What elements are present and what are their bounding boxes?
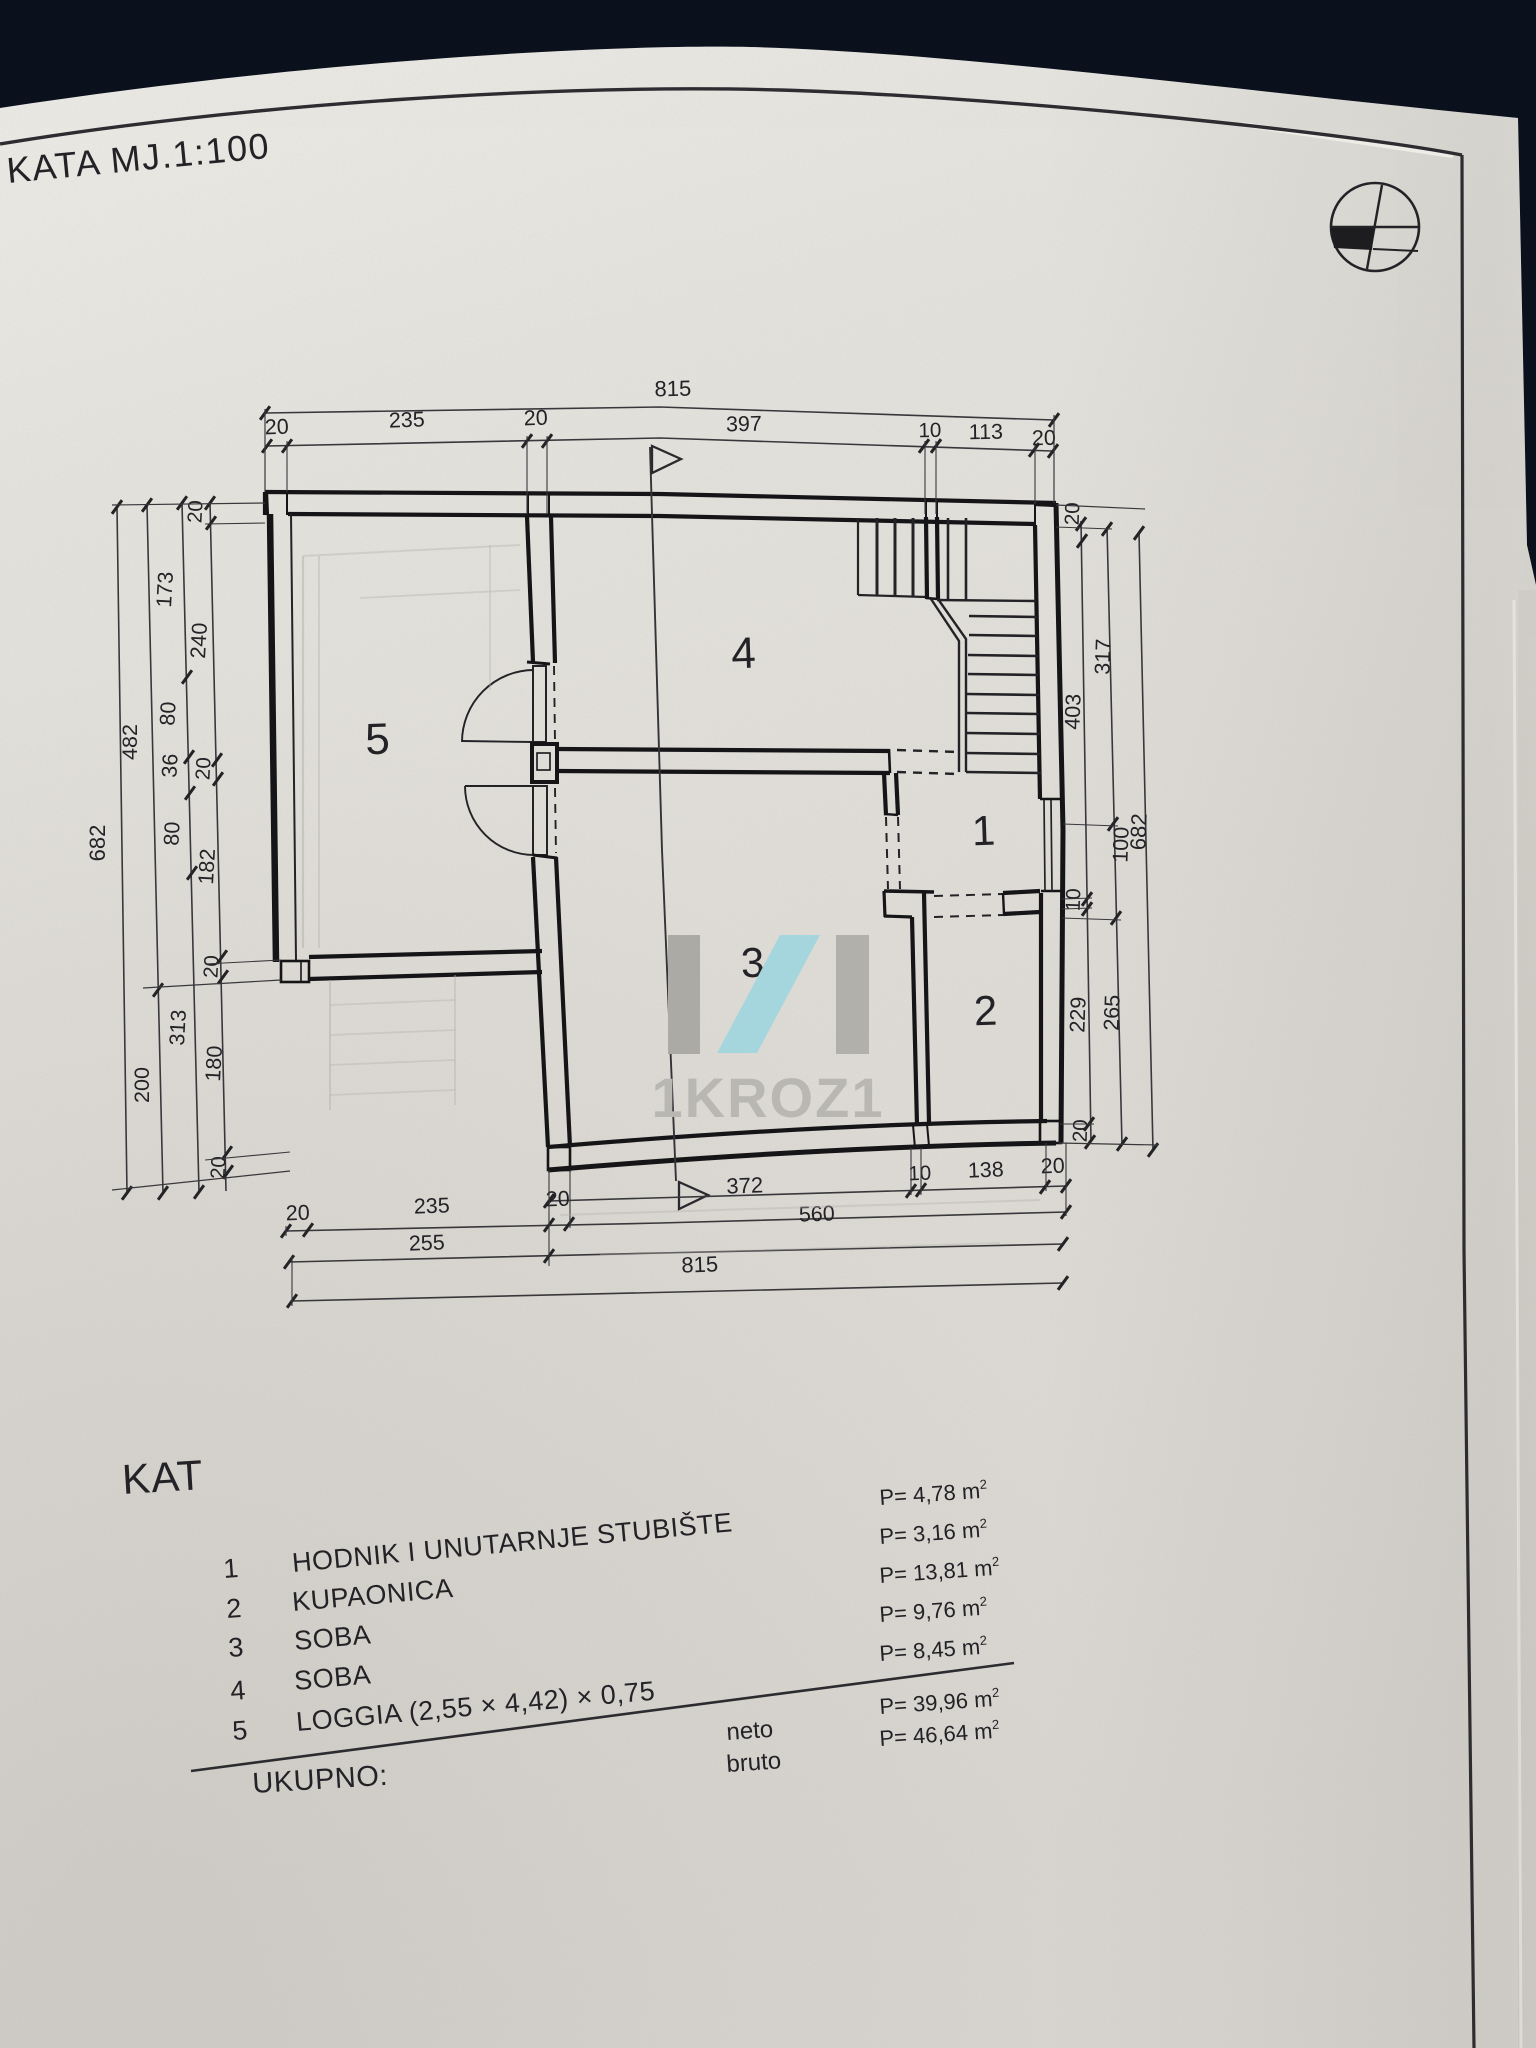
- svg-text:20: 20: [523, 406, 548, 431]
- svg-text:255: 255: [408, 1230, 445, 1255]
- svg-text:313: 313: [165, 1009, 191, 1046]
- svg-text:bruto: bruto: [726, 1747, 782, 1778]
- svg-text:235: 235: [413, 1193, 450, 1218]
- svg-text:180: 180: [201, 1045, 227, 1082]
- svg-text:5: 5: [231, 1715, 248, 1746]
- svg-text:1: 1: [222, 1553, 239, 1584]
- svg-text:182: 182: [194, 848, 220, 885]
- svg-text:2: 2: [973, 987, 998, 1035]
- svg-text:20: 20: [1040, 1154, 1065, 1179]
- svg-text:560: 560: [798, 1201, 835, 1226]
- svg-text:682: 682: [1125, 813, 1151, 851]
- svg-text:235: 235: [388, 407, 425, 432]
- svg-text:1: 1: [971, 807, 996, 855]
- svg-text:2: 2: [225, 1593, 242, 1624]
- svg-text:4: 4: [229, 1675, 246, 1706]
- svg-text:200: 200: [130, 1067, 154, 1103]
- svg-text:397: 397: [726, 412, 762, 437]
- svg-text:240: 240: [186, 622, 212, 659]
- svg-text:20: 20: [264, 415, 289, 440]
- svg-text:3: 3: [227, 1632, 244, 1663]
- svg-text:403: 403: [1060, 693, 1085, 730]
- svg-text:20: 20: [191, 757, 215, 781]
- svg-text:20: 20: [285, 1201, 310, 1226]
- svg-text:265: 265: [1099, 994, 1124, 1031]
- svg-text:113: 113: [969, 420, 1004, 445]
- svg-text:372: 372: [726, 1172, 764, 1198]
- svg-text:36: 36: [157, 753, 182, 778]
- svg-text:173: 173: [152, 571, 178, 608]
- svg-text:815: 815: [654, 376, 691, 402]
- svg-text:1KROZ1: 1KROZ1: [652, 1066, 885, 1129]
- svg-text:4: 4: [730, 629, 756, 679]
- svg-text:KAT: KAT: [121, 1451, 205, 1503]
- svg-text:138: 138: [967, 1157, 1004, 1182]
- svg-text:80: 80: [159, 821, 184, 846]
- svg-text:682: 682: [85, 825, 110, 862]
- svg-text:20: 20: [1069, 1119, 1093, 1143]
- svg-text:482: 482: [118, 724, 142, 760]
- svg-text:317: 317: [1090, 638, 1115, 675]
- svg-text:10: 10: [918, 419, 941, 442]
- svg-text:20: 20: [199, 955, 223, 979]
- svg-text:229: 229: [1065, 996, 1090, 1033]
- svg-text:5: 5: [364, 715, 390, 765]
- svg-text:815: 815: [681, 1251, 719, 1277]
- svg-text:neto: neto: [726, 1716, 774, 1746]
- svg-text:80: 80: [155, 701, 180, 726]
